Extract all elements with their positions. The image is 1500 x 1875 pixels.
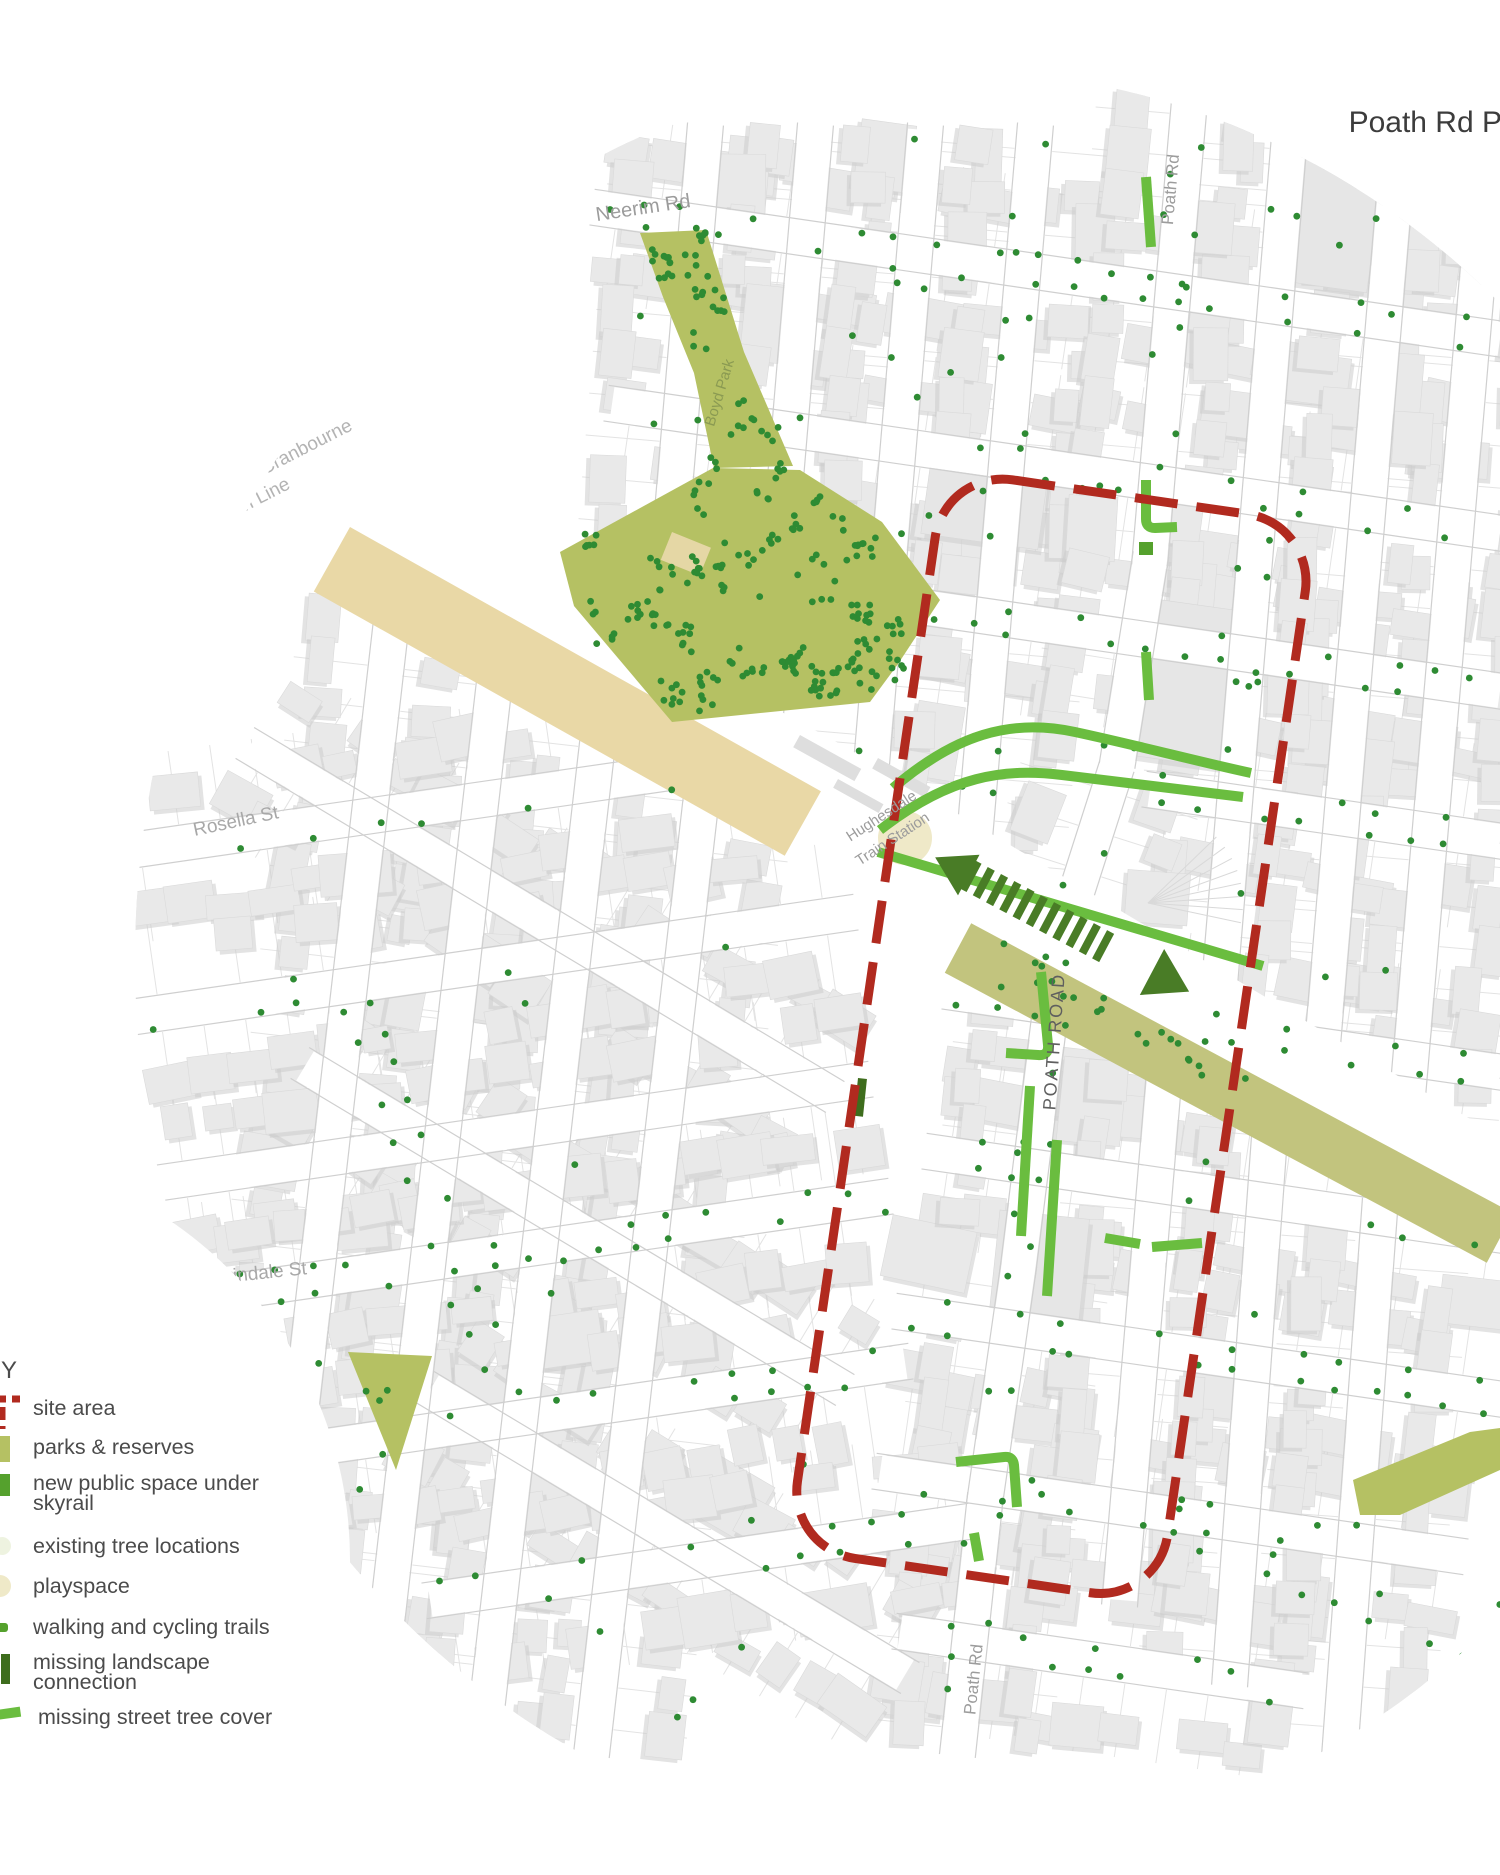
- map-svg: Neerim RdPakenham/CranbourneTrain LineRo…: [0, 0, 1500, 1875]
- trail-dash-swatch: [0, 1623, 8, 1632]
- legend-item-existing-trees: existing tree locations: [0, 1534, 240, 1558]
- page-title: Poath Rd P: [1349, 106, 1500, 139]
- parks-swatch: [0, 1436, 10, 1462]
- legend-label: playspace: [33, 1574, 130, 1598]
- legend-label: missing street tree cover: [38, 1705, 272, 1729]
- legend-key-label: Y: [1, 1357, 17, 1384]
- new-public-swatch: [0, 1474, 10, 1496]
- pakenham-line-2-label: Train Line: [209, 474, 293, 531]
- legend-label: walking and cycling trails: [32, 1615, 270, 1639]
- legend-label: parks & reserves: [33, 1435, 194, 1459]
- legend-label: site area: [33, 1396, 116, 1420]
- poath-rd-precinct-map: Neerim RdPakenham/CranbourneTrain LineRo…: [0, 0, 1500, 1875]
- legend-label-line2: connection: [33, 1670, 137, 1694]
- legend-item-missing-street-tree: missing street tree cover: [0, 1705, 272, 1729]
- legend-item-trails: walking and cycling trails: [0, 1615, 270, 1639]
- legend-label: existing tree locations: [33, 1534, 240, 1558]
- dark-bar-swatch: [1, 1654, 10, 1684]
- legend-label-line2: skyrail: [33, 1491, 94, 1515]
